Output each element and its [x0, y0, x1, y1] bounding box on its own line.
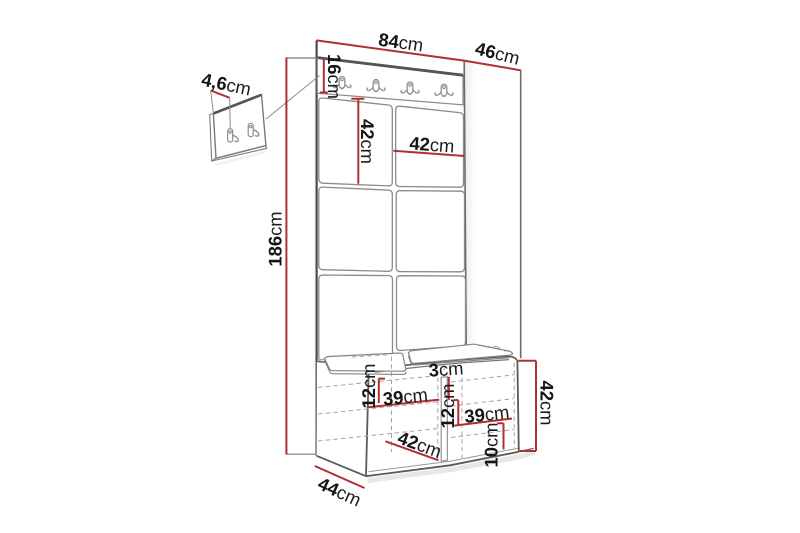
svg-text:3cm: 3cm [428, 357, 464, 380]
svg-text:16cm: 16cm [324, 54, 345, 99]
svg-text:12cm: 12cm [358, 364, 379, 409]
svg-text:186cm: 186cm [265, 211, 286, 266]
svg-text:42cm: 42cm [409, 132, 455, 156]
svg-text:42cm: 42cm [357, 119, 378, 164]
svg-text:42cm: 42cm [537, 381, 558, 426]
svg-text:10cm: 10cm [481, 423, 502, 468]
svg-text:12cm: 12cm [437, 384, 458, 429]
